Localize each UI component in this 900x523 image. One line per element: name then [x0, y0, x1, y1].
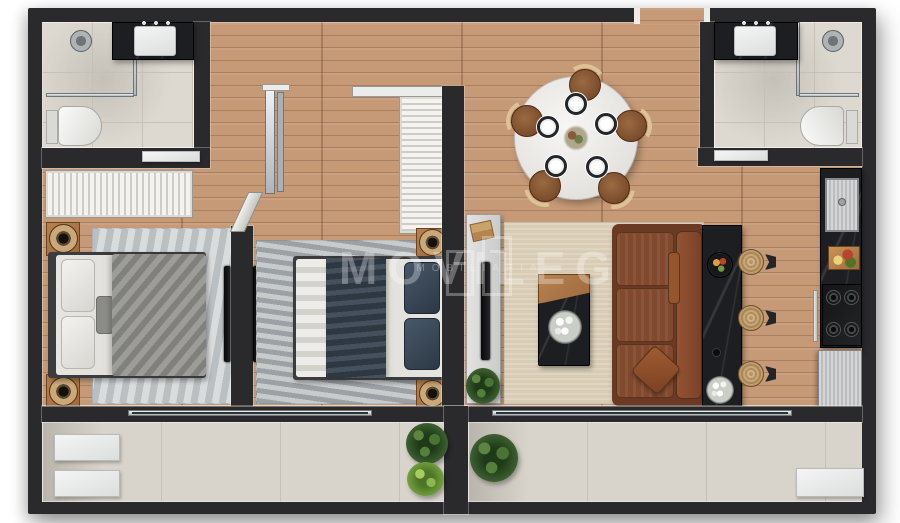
- balcony-slider-right-glazing: [496, 412, 788, 414]
- bathroom1-right-wall: [194, 22, 210, 148]
- dining-plate-3: [595, 113, 617, 135]
- bathroom1-sliding-door: [142, 151, 200, 162]
- balcony-divider-wall: [444, 406, 468, 514]
- bar-stool-1: [738, 249, 764, 275]
- shower2-glass-panel-h: [799, 93, 859, 97]
- shower2-head-icon: [822, 30, 844, 52]
- bedroom1-lamp-bottom-icon: [49, 377, 78, 406]
- dining-plate-5: [586, 156, 608, 178]
- island-flowers: [706, 376, 734, 404]
- dining-plate-4: [545, 155, 567, 177]
- bedrooms-partition-wall: [231, 226, 253, 406]
- bar-stool-2: [738, 305, 764, 331]
- dining-plate-2: [537, 116, 559, 138]
- balcony-plant-dark: [406, 423, 448, 464]
- bedroom1-tv: [224, 266, 231, 362]
- bathroom1-sink: [134, 26, 176, 56]
- bedroom2-wardrobe-rack: [400, 97, 444, 233]
- bedroom2-folded-sheet: [296, 259, 326, 377]
- sofa-seat-cushion-2: [616, 288, 674, 342]
- bar-stool-3: [738, 361, 764, 387]
- island-decor-dot: [712, 348, 721, 357]
- refrigerator: [818, 350, 862, 407]
- balcony-bench-3: [796, 468, 864, 497]
- dining-plate-1: [565, 93, 587, 115]
- balcony-fern-plant: [470, 434, 518, 482]
- balcony-bench-2: [54, 470, 120, 497]
- stove-burner-1: [826, 290, 841, 305]
- balcony-bench-1: [54, 434, 120, 461]
- bathroom2-faucet-icon: [740, 21, 772, 25]
- shower1-head-icon: [70, 30, 92, 52]
- toilet2-bowl: [800, 106, 844, 146]
- oven-handle: [813, 290, 818, 342]
- toilet1-bowl: [58, 106, 102, 146]
- stove-burner-2: [844, 290, 859, 305]
- toilet1-tank: [46, 110, 58, 144]
- island-fruit-bowl: [707, 252, 733, 278]
- bedroom1-pillow-bottom: [61, 316, 95, 369]
- living-divider-wall: [442, 86, 464, 422]
- balcony-slider-left-glazing: [132, 412, 368, 414]
- bedroom2-glass-door-panel2: [277, 92, 284, 192]
- bathroom1-faucet-icon: [140, 21, 172, 25]
- bedroom1-lamp-top-icon: [49, 224, 78, 253]
- dining-centerpiece-flowers: [563, 125, 589, 151]
- bedroom2-pillow-bottom: [404, 318, 440, 370]
- bedroom2-door-head-trim: [262, 84, 290, 91]
- console-monstera-plant: [466, 368, 500, 404]
- shower1-glass-panel-h: [46, 93, 134, 97]
- sofa-lumbar-pillow: [668, 252, 680, 304]
- coffee-table-flowers: [548, 310, 582, 344]
- dining-chair-right: [615, 110, 647, 142]
- stove-burner-4: [844, 322, 859, 337]
- entry-jamb-left: [634, 8, 640, 24]
- floor-plan-render: MOVILEG MOBILIARIA: [0, 0, 900, 523]
- bedroom2-glass-door: [265, 90, 275, 194]
- kitchen-faucet-icon: [838, 198, 846, 206]
- living-tv: [481, 262, 490, 360]
- toilet2-tank: [846, 110, 858, 144]
- stove-burner-3: [826, 322, 841, 337]
- bedroom2-closet-top-wall: [352, 86, 444, 97]
- bathroom2-left-wall: [700, 22, 714, 148]
- bedroom1-pillow-top: [61, 259, 95, 312]
- sofa-seat-cushion-1: [616, 232, 674, 286]
- bedroom1-blanket: [112, 254, 206, 376]
- entry-door-opening: [640, 8, 704, 24]
- bathroom2-sliding-door: [714, 150, 768, 161]
- dining-chair-bottom-right: [598, 172, 630, 204]
- balcony-plant-light: [407, 462, 444, 496]
- bathroom2-sink: [734, 26, 776, 56]
- bedroom2-pillow-top: [404, 262, 440, 314]
- bedroom1-wardrobe-rack: [46, 171, 192, 217]
- bedroom2-duvet: [326, 258, 386, 378]
- kitchen-cutting-board: [828, 246, 860, 270]
